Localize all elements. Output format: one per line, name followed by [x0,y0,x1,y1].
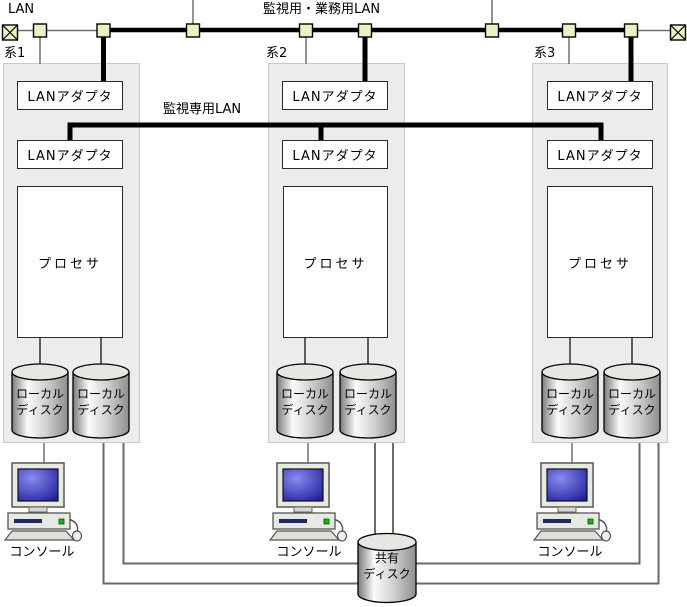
business-lan-label: 監視用・業務用LAN [263,2,380,17]
console-label: コンソール [269,541,349,560]
console-icon [270,463,347,541]
cluster-diagram: LAN 監視用・業務用LAN 監視専用LAN 系1 系2 系3 LANアダプタ … [0,0,687,607]
console-icon [534,463,611,541]
lan-adapter-box: LANアダプタ [547,140,653,169]
lan-adapter-box: LANアダプタ [282,140,388,169]
lan-adapter-box: LANアダプタ [17,81,123,110]
processor-box: プロセサ [283,186,388,338]
local-disk-label: ローカル ディスク [541,386,599,418]
console-icon [5,463,82,541]
console-label: コンソール [2,541,82,560]
local-disk-label: ローカル ディスク [72,386,130,418]
local-disk-label: ローカル ディスク [276,386,334,418]
system-name-2: 系2 [266,46,287,61]
lan-adapter-box: LANアダプタ [282,81,388,110]
system-name-3: 系3 [534,46,555,61]
processor-box: プロセサ [17,186,123,338]
processor-disk-links [40,338,632,368]
lan-adapter-box: LANアダプタ [17,140,123,169]
local-disk-label: ローカル ディスク [11,386,69,418]
lan-label: LAN [8,2,34,17]
local-disk-label: ローカル ディスク [603,386,661,418]
monitoring-lan-label: 監視専用LAN [163,102,241,117]
lan-adapter-box: LANアダプタ [547,81,653,110]
system-name-1: 系1 [4,46,25,61]
local-disk-label: ローカル ディスク [339,386,397,418]
console-label: コンソール [530,541,610,560]
lan-terminator-left-icon [3,25,18,40]
lan-terminator-right-icon [671,25,686,40]
processor-box: プロセサ [547,186,653,338]
shared-disk-label: 共有 ディスク [358,550,416,582]
